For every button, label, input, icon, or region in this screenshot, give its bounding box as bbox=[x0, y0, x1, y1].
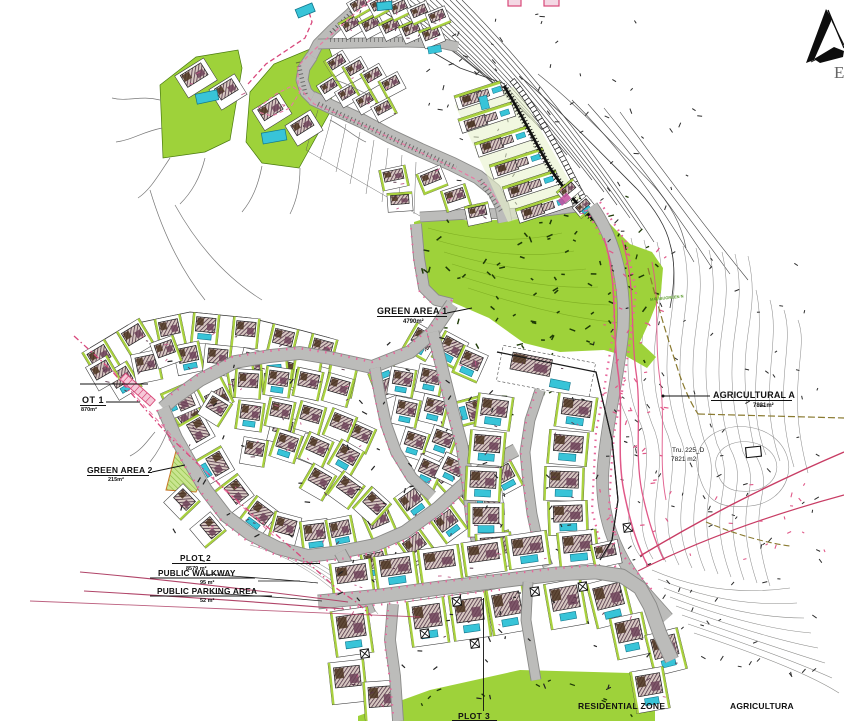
svg-text:AGRICULTURAL A: AGRICULTURAL A bbox=[713, 390, 795, 400]
svg-text:PLOT 3: PLOT 3 bbox=[458, 711, 490, 721]
svg-text:GREEN AREA 1: GREEN AREA 1 bbox=[377, 306, 447, 316]
svg-text:E: E bbox=[834, 63, 844, 82]
svg-text:PUBLIC PARKING AREA: PUBLIC PARKING AREA bbox=[157, 586, 257, 596]
svg-text:PLOT 2: PLOT 2 bbox=[180, 554, 211, 563]
svg-text:AGRICULTURA: AGRICULTURA bbox=[730, 701, 794, 711]
svg-text:OT 1: OT 1 bbox=[82, 395, 104, 405]
svg-text:95 m²: 95 m² bbox=[200, 579, 215, 586]
svg-text:52 m²: 52 m² bbox=[200, 597, 215, 604]
svg-text:7821m²: 7821m² bbox=[753, 402, 774, 409]
svg-text:7821 m2: 7821 m2 bbox=[671, 456, 697, 463]
svg-text:215m²: 215m² bbox=[108, 476, 124, 483]
svg-text:RESIDENTIAL ZONE: RESIDENTIAL ZONE bbox=[578, 701, 665, 711]
svg-text:GREEN AREA 2: GREEN AREA 2 bbox=[87, 465, 153, 475]
svg-text:Tru. 225_D: Tru. 225_D bbox=[672, 447, 705, 454]
svg-text:4790m²: 4790m² bbox=[403, 318, 424, 325]
svg-text:PUBLIC WALKWAY: PUBLIC WALKWAY bbox=[158, 569, 236, 578]
svg-text:870m²: 870m² bbox=[81, 406, 97, 413]
